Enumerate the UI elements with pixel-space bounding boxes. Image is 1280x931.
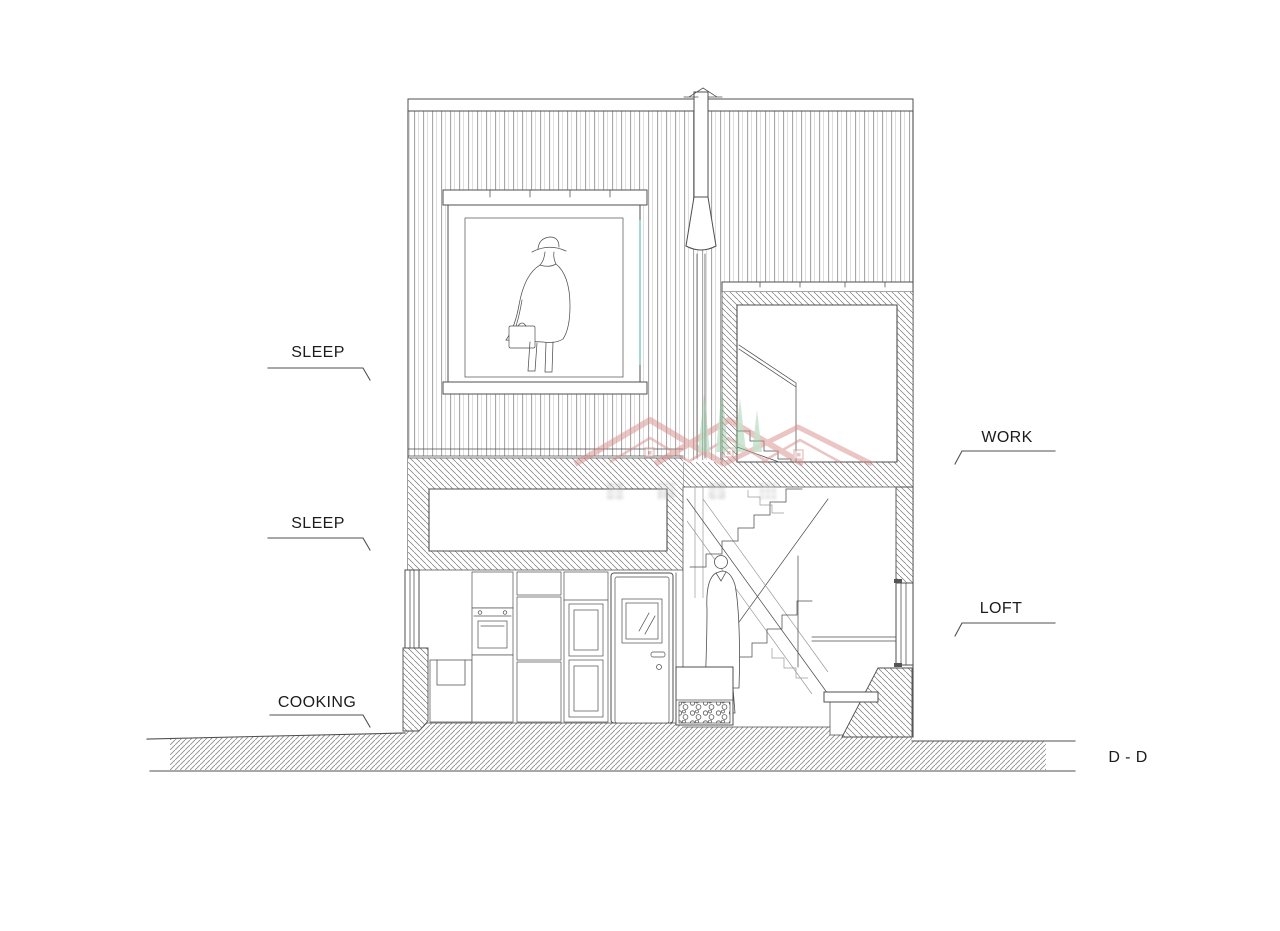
tall-cabinet xyxy=(564,572,608,722)
window-sill xyxy=(443,382,647,394)
loft-area xyxy=(812,487,913,737)
leader-work xyxy=(955,451,1055,464)
work-fascia xyxy=(722,282,913,292)
window-header xyxy=(443,190,647,205)
label-sleep-upper-text: SLEEP xyxy=(291,344,345,361)
label-sleep-lower-text: SLEEP xyxy=(291,515,345,532)
kitchen xyxy=(403,570,608,731)
label-sleep-lower: SLEEP xyxy=(268,515,370,550)
leader-sleep-lower xyxy=(268,538,370,550)
sink-unit xyxy=(430,660,472,722)
loft-right-wall xyxy=(896,487,913,583)
label-loft-text: LOFT xyxy=(980,600,1023,617)
loft-side-window xyxy=(896,583,913,665)
section-drawing-page: SLEEP SLEEP COOKING WORK LOFT D - D xyxy=(0,0,1280,931)
roof-fascia xyxy=(408,99,913,111)
flue-pipe xyxy=(694,92,708,197)
leader-cooking xyxy=(270,715,370,727)
entry-door xyxy=(611,573,676,723)
firewood-pebbles xyxy=(679,702,730,723)
stair-upper-flight xyxy=(690,489,802,567)
loft-bench xyxy=(824,692,878,702)
door-handle xyxy=(651,652,665,657)
ground xyxy=(147,723,1075,771)
leader-loft xyxy=(955,623,1055,636)
sleep-loft-window xyxy=(429,489,667,551)
cabinet-column xyxy=(517,572,561,722)
briefcase xyxy=(509,326,535,348)
firewood-storage xyxy=(676,667,733,725)
floor-band-hatch xyxy=(408,458,683,570)
label-cooking: COOKING xyxy=(270,694,370,727)
kitchen-left-wall xyxy=(403,648,428,731)
section-drawing-svg: SLEEP SLEEP COOKING WORK LOFT D - D xyxy=(0,0,1280,931)
label-work: WORK xyxy=(955,429,1055,464)
oven-unit xyxy=(472,572,513,722)
label-work-text: WORK xyxy=(981,429,1032,446)
label-cooking-text: COOKING xyxy=(278,694,356,711)
large-window xyxy=(443,190,647,394)
label-loft: LOFT xyxy=(955,600,1055,636)
leader-sleep-upper xyxy=(268,368,370,380)
label-sleep-upper: SLEEP xyxy=(268,344,370,380)
floor-band xyxy=(408,458,683,570)
kitchen-side-window xyxy=(405,570,419,648)
person-head xyxy=(715,556,728,569)
section-name-label: D - D xyxy=(1108,749,1147,766)
window-glass xyxy=(465,218,623,377)
